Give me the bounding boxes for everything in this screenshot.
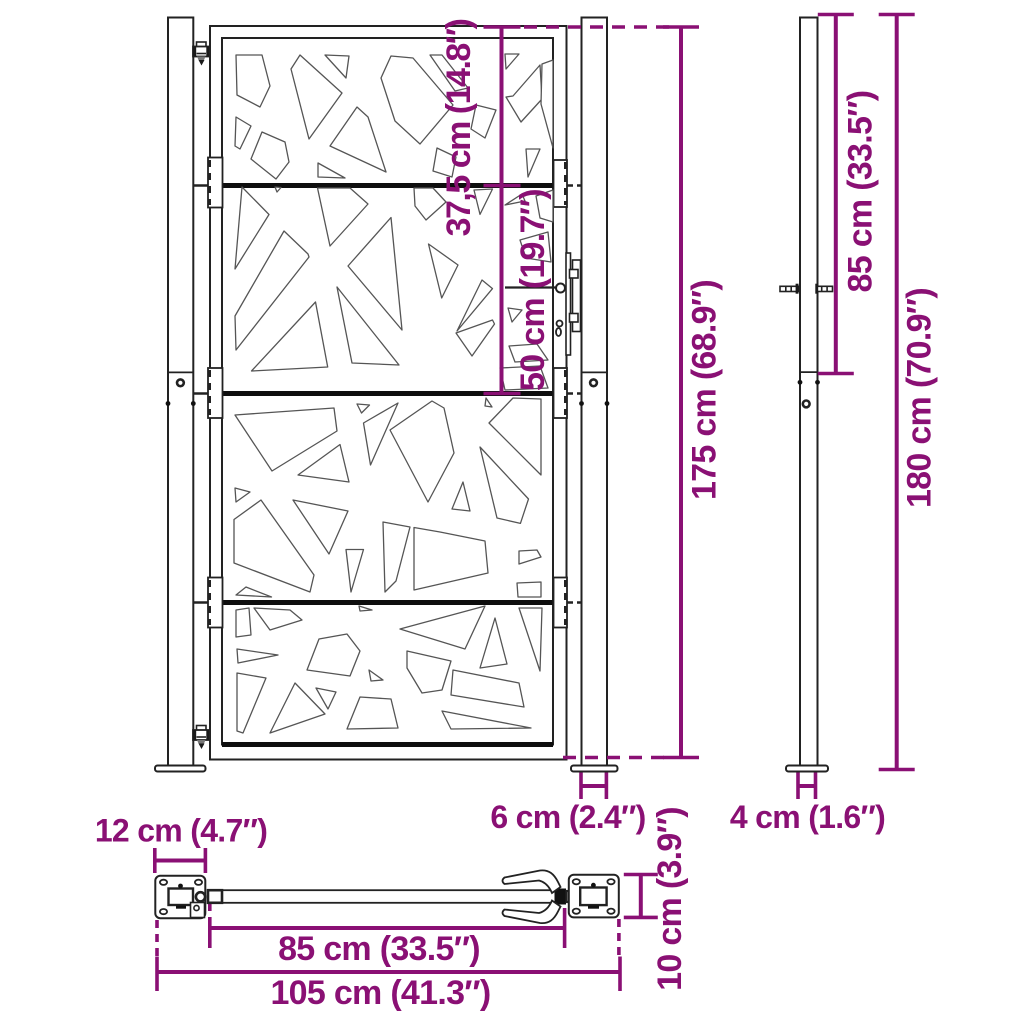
svg-text:37,5 cm (14.8″): 37,5 cm (14.8″): [440, 19, 478, 236]
svg-text:6 cm (2.4″): 6 cm (2.4″): [490, 799, 645, 835]
svg-text:12 cm (4.7″): 12 cm (4.7″): [95, 813, 267, 849]
svg-text:175 cm (68.9″): 175 cm (68.9″): [686, 280, 724, 500]
svg-text:85 cm (33.5″): 85 cm (33.5″): [842, 91, 880, 293]
svg-text:10 cm (3.9″): 10 cm (3.9″): [651, 807, 689, 991]
svg-text:85 cm (33.5″): 85 cm (33.5″): [278, 930, 480, 968]
svg-text:180 cm (70.9″): 180 cm (70.9″): [901, 288, 939, 508]
svg-text:105 cm (41.3″): 105 cm (41.3″): [270, 974, 490, 1012]
svg-text:50 cm (19.7″): 50 cm (19.7″): [514, 189, 552, 391]
svg-text:4 cm (1.6″): 4 cm (1.6″): [730, 799, 885, 835]
